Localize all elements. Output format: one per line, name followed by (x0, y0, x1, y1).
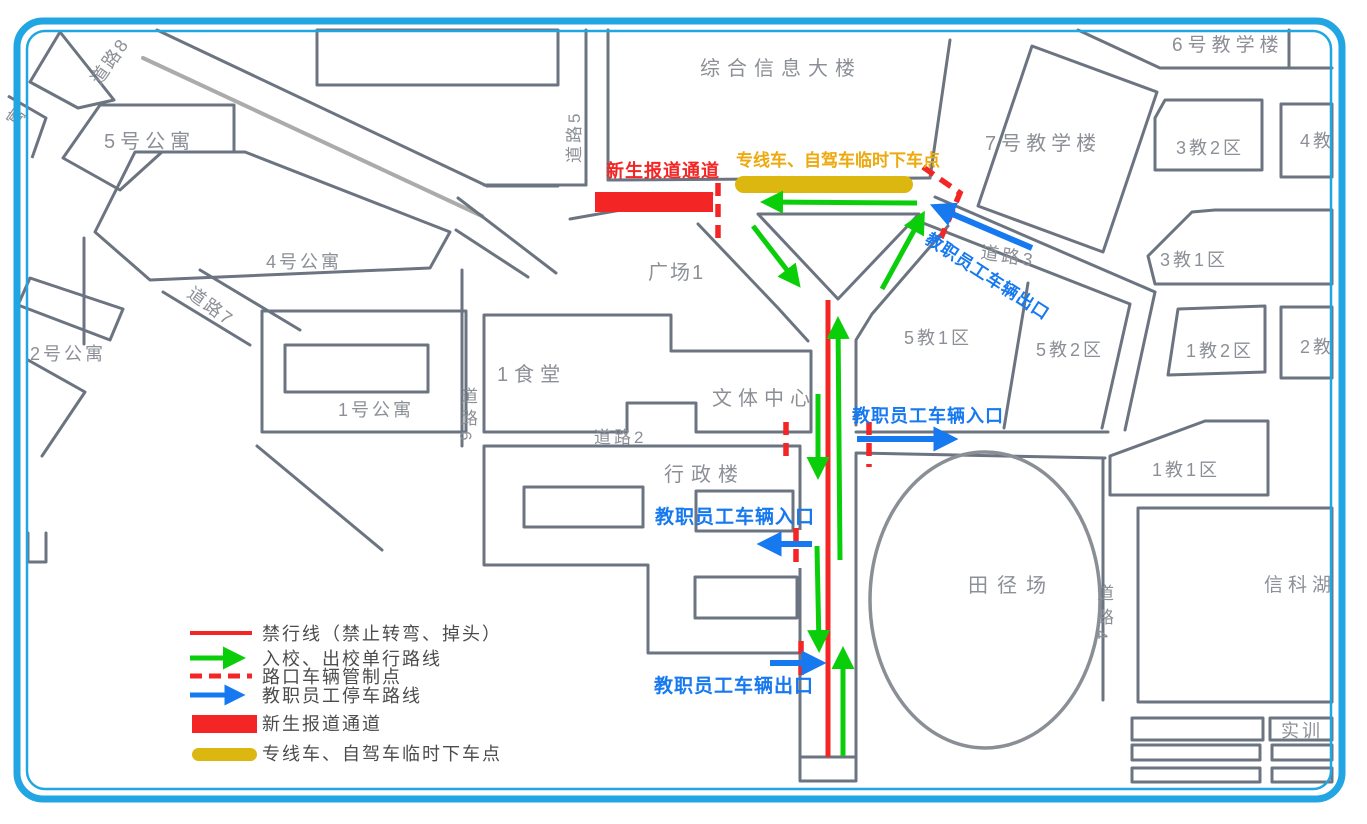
label-training: 实训 (1281, 721, 1323, 741)
label-teach6: 6号教学楼 (1172, 34, 1284, 56)
lake-outline (1138, 508, 1332, 702)
legend-label-control-point: 路口车辆管制点 (262, 667, 402, 687)
label-staff-entry-west: 教职员工车辆入口 (655, 505, 815, 528)
label-road4-char1: 道 (1097, 584, 1116, 603)
label-teach7: 7号教学楼 (985, 132, 1101, 155)
legend: 禁行线（禁止转弯、掉头） 入校、出校单行路线 路口车辆管制点 教职员工停车路线 … (190, 624, 502, 764)
building-top-center (317, 30, 558, 85)
label-road6-num: 6 (456, 431, 475, 442)
southwest-diagonal-road (257, 446, 382, 550)
label-road7: 道路7 (184, 283, 238, 330)
campus-map: 5号公寓 4号公寓 2号公寓 1号公寓 寓 综合信息大楼 6号教学楼 7号教学楼… (0, 0, 1367, 824)
legend-label-staff-route: 教职员工停车路线 (262, 686, 422, 706)
label-j2: 2教 (1300, 337, 1334, 357)
training-row3-right (1272, 768, 1332, 782)
road8-edge (157, 30, 487, 186)
building-admin-inner-3 (695, 577, 797, 618)
label-sports-center: 文体中心 (712, 387, 816, 410)
label-apt4: 4号公寓 (266, 252, 342, 272)
building-admin-block (484, 446, 800, 653)
label-apt2: 2号公寓 (30, 344, 106, 364)
label-j3z2: 3教2区 (1176, 138, 1244, 158)
east-gap-road-west-edge (1102, 304, 1130, 428)
label-j1z2: 1教2区 (1186, 341, 1254, 361)
label-staff-exit-south: 教职员工车辆出口 (654, 674, 814, 697)
building-j3z2 (1155, 100, 1262, 170)
label-apt5: 5号公寓 (104, 130, 195, 153)
legend-gold-bar-symbol (192, 748, 257, 761)
road-network (28, 30, 1332, 781)
green-arrow-down-2 (817, 546, 819, 647)
label-plaza: 广场1 (648, 261, 705, 284)
label-info-building: 综合信息大楼 (700, 57, 862, 80)
legend-red-block-symbol (192, 715, 257, 733)
legend-label-dropoff: 专线车、自驾车临时下车点 (262, 744, 502, 764)
buildings-layer (8, 30, 1332, 782)
south-gate (800, 757, 856, 781)
label-admin: 行政楼 (664, 463, 745, 486)
inbound-road-west-edge (698, 224, 808, 341)
building-apt2-annex (18, 278, 123, 340)
label-road4-num: 4 (1092, 630, 1111, 641)
small-building-corner (28, 533, 46, 562)
label-road2: 道路2 (594, 428, 646, 447)
road3-north-edge (935, 197, 1155, 292)
label-j5z2: 5教2区 (1036, 340, 1104, 360)
campus-traffic-map-page: 5号公寓 4号公寓 2号公寓 1号公寓 寓 综合信息大楼 6号教学楼 7号教学楼… (0, 0, 1367, 824)
green-arrow-west (766, 202, 917, 203)
label-j1z1: 1教1区 (1152, 460, 1220, 480)
label-road8: 道路8 (87, 34, 133, 88)
training-row2-left (1132, 745, 1260, 760)
building-j1z1 (1110, 421, 1268, 495)
legend-label-forbid: 禁行线（禁止转弯、掉头） (262, 624, 502, 644)
label-j3z1: 3教1区 (1160, 250, 1228, 270)
training-row2-right (1272, 745, 1332, 760)
label-track: 田径场 (968, 574, 1055, 597)
legend-label-oneway: 入校、出校单行路线 (262, 649, 442, 669)
green-arrow-inbound (753, 226, 797, 283)
label-staff-entry-east: 教职员工车辆入口 (852, 405, 1004, 426)
label-road6-char1: 道 (461, 387, 480, 406)
label-apt1: 1号公寓 (338, 400, 414, 420)
southwest-road-edge (28, 360, 85, 456)
dropoff-gold-bar (735, 176, 913, 193)
green-arrow-up-main (838, 322, 840, 560)
label-dropoff-point: 专线车、自驾车临时下车点 (736, 150, 940, 170)
track-field-ellipse (870, 452, 1100, 748)
label-j5z1: 5教1区 (904, 328, 972, 348)
label-freshman-channel: 新生报道通道 (606, 160, 720, 181)
label-j4: 4教 (1300, 131, 1334, 151)
building-admin-inner-1 (524, 487, 643, 527)
training-row3-left (1132, 768, 1260, 782)
plaza-west-edge-b (456, 230, 528, 277)
label-canteen: 1食堂 (497, 363, 566, 386)
building-j3z1 (1148, 210, 1332, 284)
label-road6-char2: 路 (461, 409, 480, 428)
label-road4-char2: 路 (1097, 608, 1116, 627)
label-lake: 信科湖 (1264, 574, 1336, 596)
freshman-channel-block (595, 192, 713, 212)
legend-label-freshman: 新生报道通道 (262, 714, 382, 734)
building-apt1-inner (285, 345, 428, 392)
label-road5: 道路5 (565, 111, 584, 163)
training-row1-left (1132, 718, 1263, 740)
